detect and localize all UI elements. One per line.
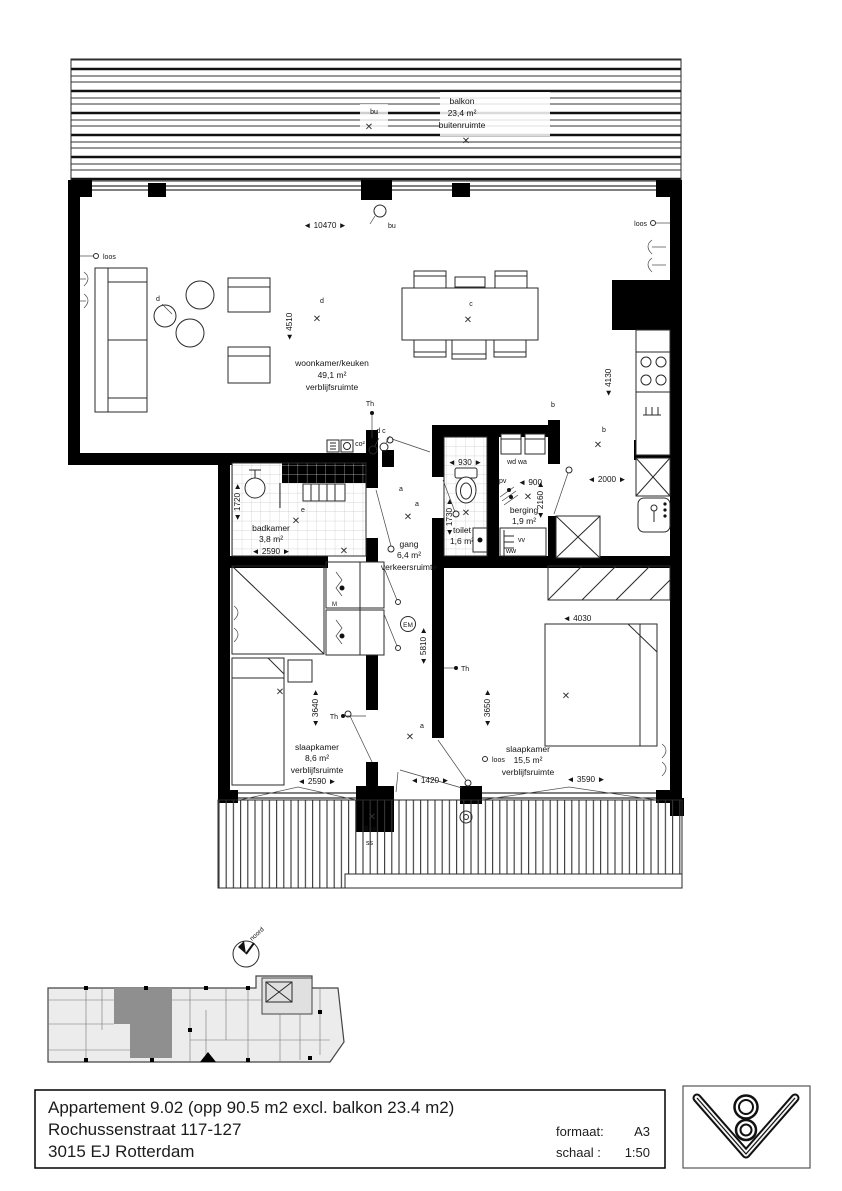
bedroom-1: ✕ ◄ 3640 ► Th slaapkamer 8,6 m² verblijf… <box>232 566 372 786</box>
loos-label: loos <box>103 254 116 261</box>
b-label: b <box>602 427 606 434</box>
title-block: Appartement 9.02 (opp 90.5 m2 excl. balk… <box>35 1090 665 1168</box>
ss-label: ss <box>366 840 374 847</box>
co2-sensor-label: co² <box>355 441 365 448</box>
thermostat-label: Th <box>461 666 469 673</box>
hall-type: verkeersruimte <box>381 562 437 572</box>
radiator <box>303 484 345 501</box>
a-label: a <box>399 486 403 493</box>
floorplan-drawing: balkon 23,4 m² buitenruimte ✕ bu ✕ <box>0 0 842 1191</box>
chair <box>452 340 486 359</box>
light-point-icon: ✕ <box>340 546 348 557</box>
balcony-name: balkon <box>449 96 474 106</box>
toilet-name: toilet <box>453 525 472 535</box>
light-point-icon: ✕ <box>524 492 532 503</box>
living-name: woonkamer/keuken <box>294 358 369 368</box>
bedroom2-type: verblijfsruimte <box>502 767 555 777</box>
loos-label: loos <box>634 221 647 228</box>
living-room: d c ✕ d ✕ woonkamer/keuken 49,1 m² verbl… <box>80 205 670 454</box>
oven-icon <box>643 407 661 415</box>
meter-closet-label: M <box>332 602 337 608</box>
electric-meter-label: EM <box>403 622 413 629</box>
bedroom-2: ◄ 4030 ✕ ◄ 3650 ► slaapkamer 15,5 m² ver… <box>438 566 670 786</box>
floorplan-page: balkon 23,4 m² buitenruimte ✕ bu ✕ <box>0 0 842 1191</box>
dim-1720: ◄ 1720 ► <box>233 483 242 522</box>
vv-label: vv <box>518 537 526 544</box>
chair <box>494 340 526 357</box>
north-label: noord <box>249 926 266 943</box>
dim-3640: ◄ 3640 ► <box>311 689 320 728</box>
light-point-icon: ✕ <box>406 732 414 743</box>
dim-2590: ◄ 2590 ► <box>252 547 291 556</box>
light-point-icon: ✕ <box>462 136 470 147</box>
format-value: A3 <box>634 1124 650 1139</box>
scale-value: 1:50 <box>625 1145 650 1160</box>
closet <box>326 610 384 655</box>
d-label: d <box>320 298 324 305</box>
storage-area: 1,9 m² <box>512 516 536 526</box>
switch-labels: d c <box>376 428 386 435</box>
washer <box>501 434 521 454</box>
dim-4510: ◄ 4510 <box>285 312 294 341</box>
dining-table <box>402 288 538 340</box>
loos-label: loos <box>492 757 505 764</box>
dim-1420: ◄ 1420 ► <box>411 776 450 785</box>
nightstand <box>288 660 312 682</box>
chair <box>414 340 446 357</box>
washbasin <box>245 478 265 498</box>
light-point-icon: ✕ <box>562 691 570 702</box>
wardrobe <box>548 566 670 600</box>
side-table <box>154 305 176 327</box>
a-label: a <box>420 723 424 730</box>
hall-name: gang <box>400 539 419 549</box>
storage-name: berging <box>510 505 539 515</box>
pv-label: pv <box>499 478 507 485</box>
dim-3650: ◄ 3650 ► <box>483 689 492 728</box>
light-point-icon: ✕ <box>313 314 321 325</box>
balcony-area: 23,4 m² <box>448 108 477 118</box>
chair <box>455 277 485 287</box>
washer-dryer-label: wd wa <box>506 459 527 466</box>
doorbell <box>341 440 353 452</box>
light-point-icon: ✕ <box>462 508 470 519</box>
ww-label: ww <box>505 548 517 555</box>
light-point-icon: ✕ <box>276 687 284 698</box>
bnv-label: Bnv <box>364 826 377 833</box>
toilet-area: 1,6 m² <box>450 536 474 546</box>
light-point-icon: ✕ <box>368 812 376 823</box>
chair <box>495 271 527 288</box>
armchair <box>228 347 270 383</box>
bedroom2-area: 15,5 m² <box>514 755 543 765</box>
v8-logo <box>683 1086 810 1168</box>
light-point-icon: ✕ <box>404 512 412 523</box>
scale-label: schaal : <box>556 1145 601 1160</box>
living-area: 49,1 m² <box>318 370 347 380</box>
bedroom1-area: 8,6 m² <box>305 753 329 763</box>
living-type: verblijfsruimte <box>306 382 359 392</box>
thermostat-label: Th <box>330 714 338 721</box>
chair <box>414 271 446 288</box>
bathroom-name: badkamer <box>252 523 290 533</box>
site-plan: noord <box>48 926 344 1062</box>
dim-5810: ◄ 5810 ► <box>419 627 428 666</box>
format-label: formaat: <box>556 1124 604 1139</box>
dim-3590: ◄ 3590 ► <box>567 775 606 784</box>
kitchen: ◄ 4130 ◄ 2000 ► b ✕ b <box>551 330 670 558</box>
side-table <box>186 281 214 309</box>
dim-10470: ◄ 10470 ► <box>303 221 347 230</box>
e-label: e <box>301 507 305 514</box>
dim-2000: ◄ 2000 ► <box>588 475 627 484</box>
dim-2590: ◄ 2590 ► <box>298 777 337 786</box>
d-label: d <box>156 296 160 303</box>
light-point-icon: ✕ <box>594 440 602 451</box>
gallery-bottom: ◄ 1420 ► ✕ Bnv ss <box>218 770 682 888</box>
thermostat-label: Th <box>366 401 374 408</box>
bedroom2-name: slaapkamer <box>506 744 550 754</box>
dim-4030: ◄ 4030 <box>563 614 592 623</box>
armchair <box>228 278 270 312</box>
bedroom1-name: slaapkamer <box>295 742 339 752</box>
dim-930: ◄ 930 ► <box>448 458 482 467</box>
bedroom1-type: verblijfsruimte <box>291 765 344 775</box>
balcony-type: buitenruimte <box>439 120 486 130</box>
side-table <box>176 319 204 347</box>
hall-area: 6,4 m² <box>397 550 421 560</box>
c-label: c <box>469 301 473 308</box>
light-point-icon: ✕ <box>365 122 373 133</box>
city-address: 3015 EJ Rotterdam <box>48 1142 194 1161</box>
dryer <box>525 434 545 454</box>
street-address: Rochussenstraat 117-127 <box>48 1120 241 1139</box>
light-point-icon: ✕ <box>464 315 472 326</box>
bu-label: bu <box>388 223 396 230</box>
b-label: b <box>551 402 555 409</box>
light-point-icon: ✕ <box>292 516 300 527</box>
apartment-title: Appartement 9.02 (opp 90.5 m2 excl. balk… <box>48 1098 454 1117</box>
bed <box>232 658 284 785</box>
bathroom-area: 3,8 m² <box>259 534 283 544</box>
dim-4130: ◄ 4130 <box>604 368 613 397</box>
a-label: a <box>415 501 419 508</box>
toilet-room: ◄ 930 ► ✕ ◄ 1730 ► toilet 1,6 m² <box>443 437 487 556</box>
bu-label: bu <box>370 109 378 116</box>
balcony-top: balkon 23,4 m² buitenruimte ✕ bu ✕ <box>71 59 681 181</box>
